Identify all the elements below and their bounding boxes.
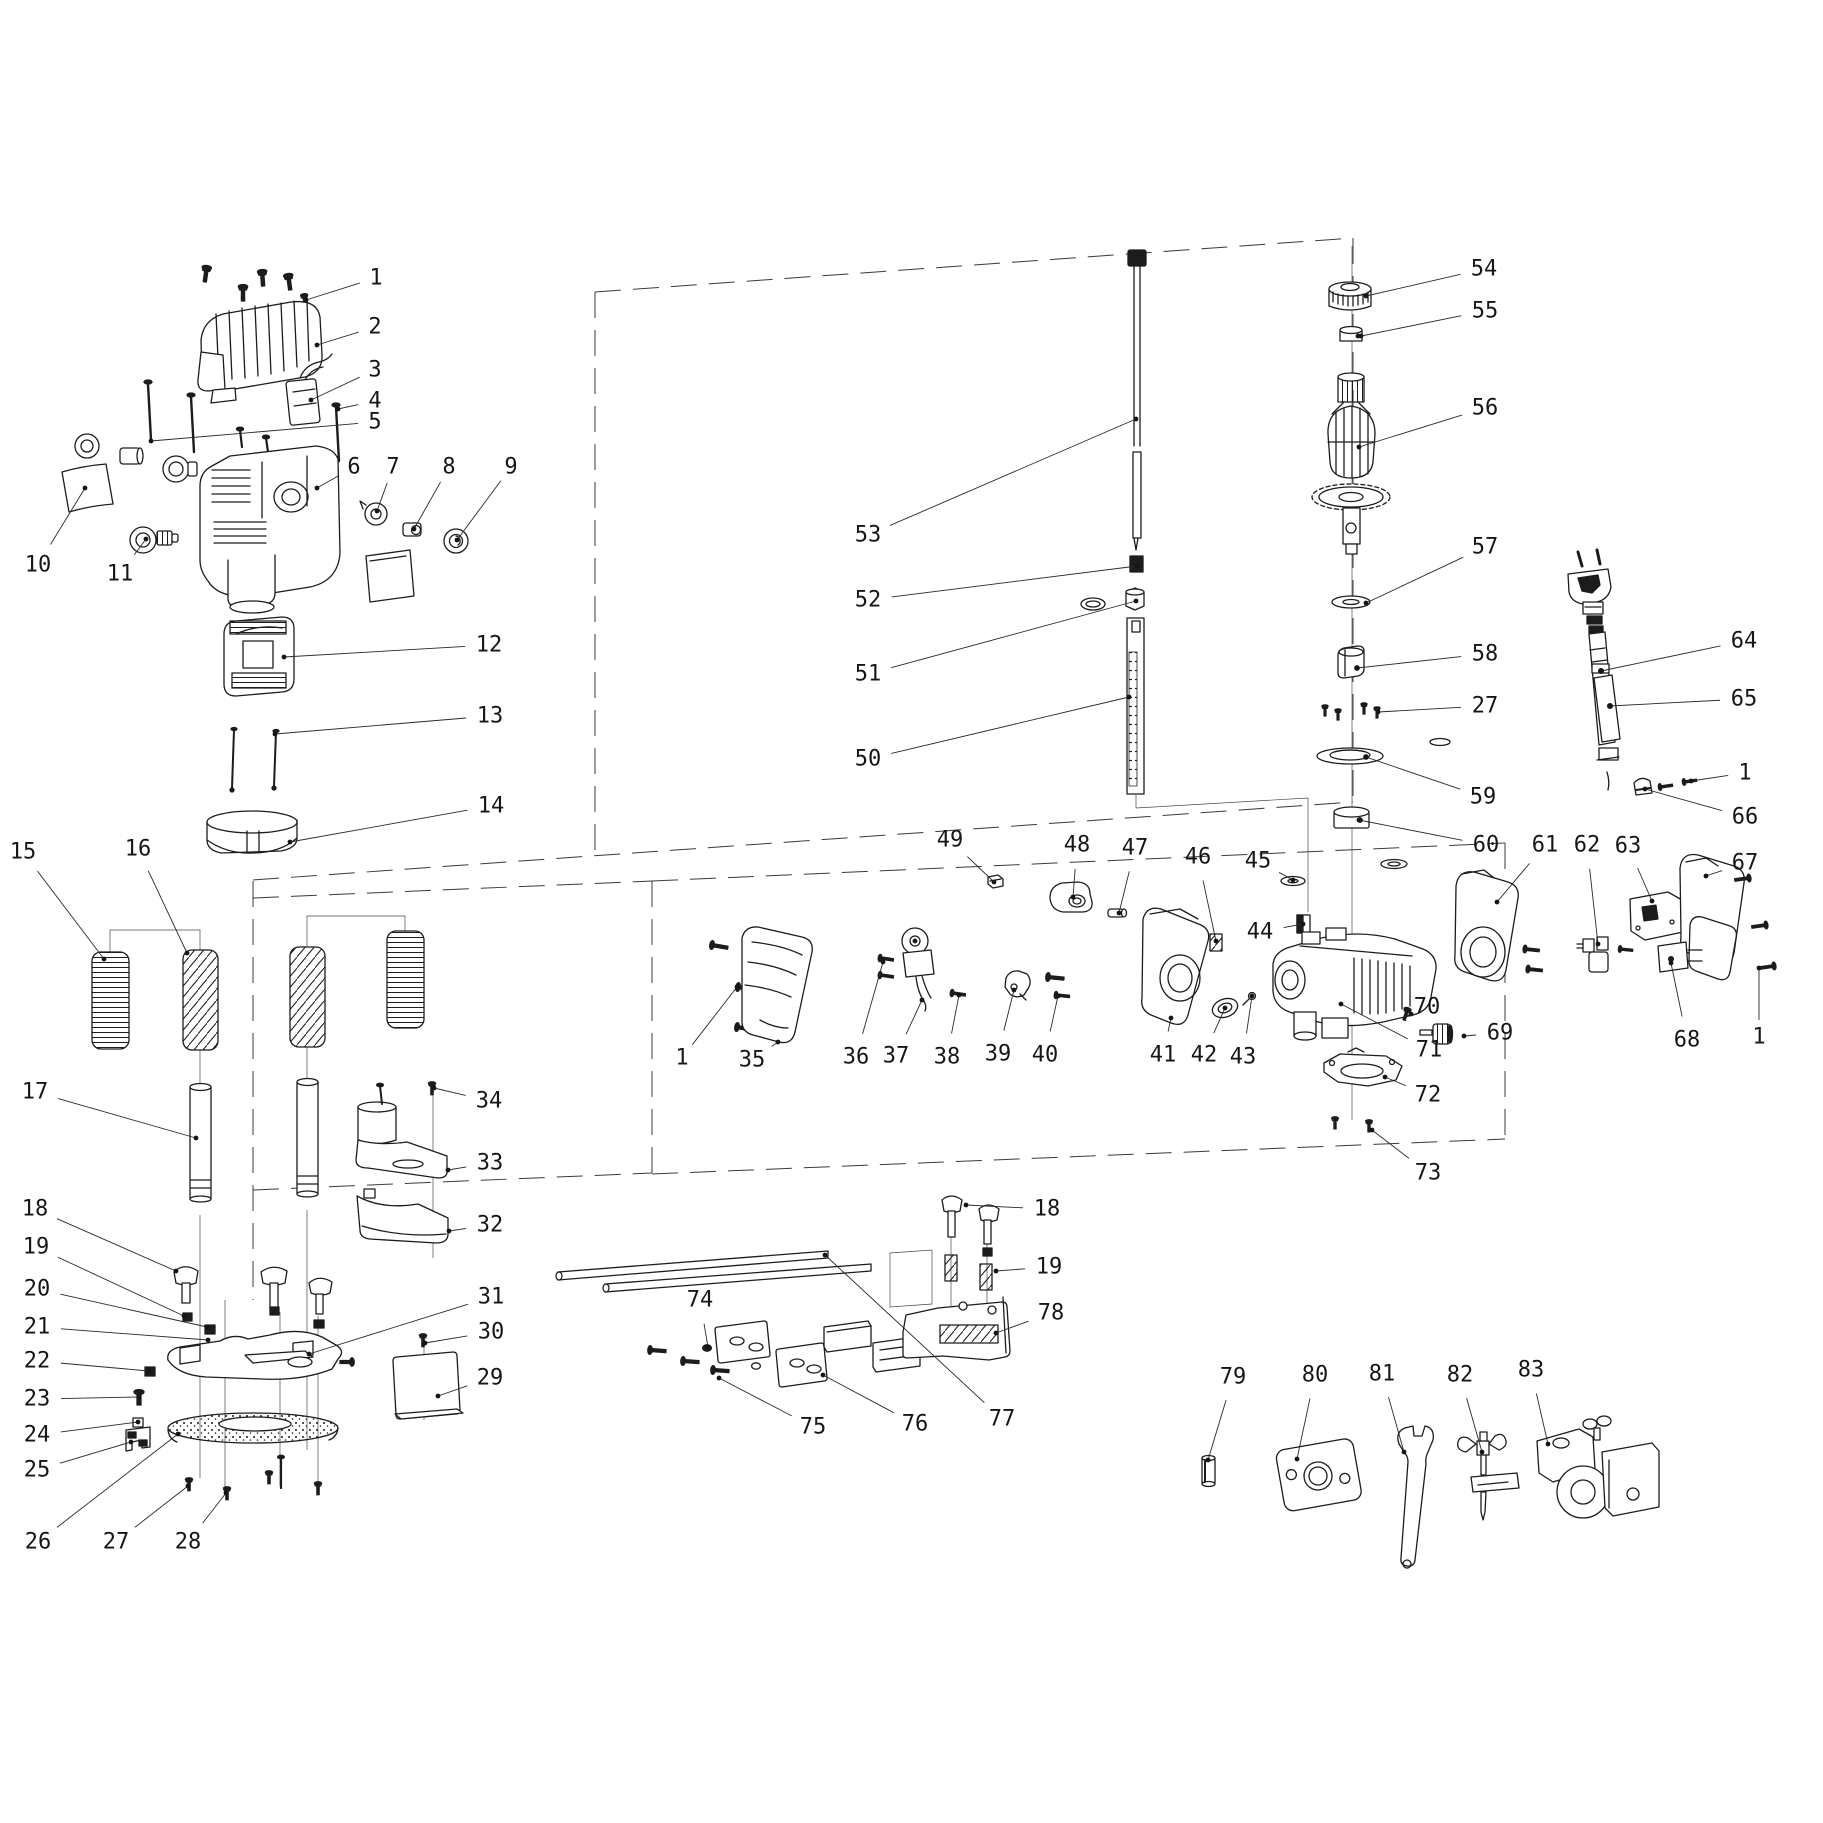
leader-dot-36-35 (881, 960, 886, 965)
leader-dot-21-20 (206, 1338, 211, 1343)
part-base-flange (1324, 1048, 1402, 1086)
leader-line-38-37 (952, 995, 959, 1033)
leader-dot-18-17 (174, 1269, 179, 1274)
callout-37-36: 37 (883, 1044, 910, 1069)
callout-77-80: 77 (989, 1407, 1016, 1432)
callout-66-67: 66 (1732, 805, 1759, 830)
leader-dot-32-31 (447, 1229, 452, 1234)
callout-49-48: 49 (937, 828, 964, 853)
leader-dot-3-2 (309, 398, 314, 403)
leader-dot-37-36 (920, 998, 925, 1003)
leader-line-25-24 (60, 1442, 131, 1463)
callout-54-53: 54 (1471, 257, 1498, 282)
part-spacer-60 (1334, 807, 1369, 828)
leader-dot-74-77 (706, 1345, 711, 1350)
phantom-box-b2-bottom (652, 1139, 1505, 1174)
leader-dot-20-19 (205, 1325, 210, 1330)
leader-dot-39-38 (1012, 988, 1017, 993)
leader-dot-31-30 (307, 1352, 312, 1357)
leader-dot-23-22 (137, 1395, 142, 1400)
leader-dot-14-13 (288, 840, 293, 845)
callout-3-2: 3 (368, 358, 381, 383)
callout-43-42: 43 (1230, 1045, 1257, 1070)
leader-dot-76-79 (821, 1373, 826, 1378)
callout-20-19: 20 (24, 1277, 51, 1302)
callout-34-33: 34 (476, 1089, 503, 1114)
part-fence-plates (715, 1321, 827, 1387)
callout-35-34: 35 (739, 1048, 766, 1073)
leader-dot-44-43 (1301, 922, 1306, 927)
callout-57-56: 57 (1472, 535, 1499, 560)
leader-line-50-49 (891, 697, 1129, 753)
callout-10-9: 10 (25, 553, 52, 578)
fence-detail-frame (890, 1250, 932, 1307)
leader-line-17-16 (58, 1099, 196, 1138)
callout-32-31: 32 (477, 1213, 504, 1238)
leader-line-19-83 (996, 1269, 1025, 1271)
callout-11-10: 11 (107, 562, 134, 587)
leader-line-60-60 (1359, 820, 1462, 840)
leader-dot-42-41 (1223, 1006, 1228, 1011)
callout-30-29: 30 (478, 1320, 505, 1345)
leader-line-27-58 (1378, 707, 1461, 712)
part-retainer-washer-59 (1317, 748, 1383, 764)
callout-29-28: 29 (477, 1366, 504, 1391)
leader-line-1-66 (1691, 775, 1728, 781)
callout-58-57: 58 (1472, 642, 1499, 667)
leader-dot-11-10 (144, 537, 149, 542)
leader-dot-68-69 (1669, 961, 1674, 966)
leader-dot-19-18 (182, 1314, 187, 1319)
callout-1-75: 1 (675, 1046, 688, 1071)
part-cap-7 (360, 501, 387, 525)
leader-dot-12-11 (282, 655, 287, 660)
part-spring-dense-left (92, 952, 129, 1049)
callout-46-45: 46 (1185, 845, 1212, 870)
leader-line-14-13 (290, 810, 467, 842)
leader-dot-28-27 (224, 1491, 229, 1496)
leader-dot-16-15 (185, 951, 190, 956)
leader-dot-66-67 (1643, 787, 1648, 792)
callout-56-55: 56 (1472, 396, 1499, 421)
callout-63-63: 63 (1615, 834, 1642, 859)
callout-31-30: 31 (478, 1285, 505, 1310)
leader-line-74-77 (704, 1324, 708, 1347)
leader-dot-15-14 (102, 957, 107, 962)
callout-17-16: 17 (22, 1080, 49, 1105)
part-label-sticker (366, 550, 414, 602)
leader-dot-80-85 (1295, 1457, 1300, 1462)
part-screws-27 (1322, 703, 1380, 721)
part-speed-dial (902, 928, 934, 1011)
callout-41-40: 41 (1150, 1043, 1177, 1068)
leader-line-53-52 (890, 419, 1136, 525)
leader-line-21-20 (61, 1329, 208, 1340)
leader-dot-64-64 (1599, 669, 1604, 674)
exploded-parts-diagram: 1234567891011121314151617181920212223242… (0, 0, 1823, 1823)
leader-dot-50-49 (1127, 695, 1132, 700)
callout-67-68: 67 (1732, 851, 1759, 876)
leader-dot-72-73 (1383, 1075, 1388, 1080)
callout-8-7: 8 (442, 455, 455, 480)
callout-22-21: 22 (24, 1349, 51, 1374)
leader-line-65-65 (1610, 700, 1720, 706)
leader-line-1-0 (306, 283, 360, 300)
callout-23-22: 23 (24, 1387, 51, 1412)
leader-dot-22-21 (147, 1369, 152, 1374)
part-side-knob (130, 527, 178, 553)
leader-dot-57-56 (1364, 601, 1369, 606)
part-clamp-ring (207, 811, 297, 853)
leader-dot-40-39 (1056, 994, 1061, 999)
callout-52-51: 52 (855, 588, 882, 613)
leader-line-8-7 (414, 482, 441, 529)
callout-60-60: 60 (1473, 833, 1500, 858)
spring-group-brackets (110, 916, 405, 952)
phantom-box-a-top (595, 238, 1353, 292)
phantom-box-b1-top (253, 881, 652, 898)
leader-line-15-14 (37, 871, 104, 959)
leader-line-34-33 (434, 1088, 466, 1095)
leader-line-30-29 (425, 1336, 467, 1343)
part-base-small-fasteners (126, 1367, 155, 1451)
leader-line-47-46 (1119, 871, 1129, 913)
part-switch-screws (1523, 945, 1633, 975)
part-cord-clamp (1634, 777, 1697, 795)
leader-line-5-4 (151, 423, 358, 441)
callout-62-62: 62 (1574, 833, 1601, 858)
part-guide-pins (230, 728, 279, 793)
leader-dot-24-23 (136, 1420, 141, 1425)
leader-dot-7-6 (375, 509, 380, 514)
leader-dot-19-83 (994, 1269, 999, 1274)
callout-68-69: 68 (1674, 1028, 1701, 1053)
leader-dot-53-52 (1134, 417, 1139, 422)
callout-50-49: 50 (855, 747, 882, 772)
leader-line-33-32 (448, 1167, 466, 1170)
leader-line-40-39 (1050, 996, 1058, 1032)
leader-line-54-53 (1366, 274, 1461, 296)
callout-83-88: 83 (1518, 1358, 1545, 1383)
leader-dot-9-8 (455, 538, 460, 543)
callout-78-81: 78 (1038, 1301, 1065, 1326)
leader-dot-26-25 (176, 1432, 181, 1437)
leader-dot-56-55 (1357, 445, 1362, 450)
callout-47-46: 47 (1122, 836, 1149, 861)
leader-line-79-84 (1208, 1400, 1226, 1460)
leader-line-68-69 (1671, 963, 1682, 1017)
leader-dot-75-78 (717, 1376, 722, 1381)
leader-line-66-67 (1645, 789, 1722, 811)
part-dust-shoe (357, 1189, 448, 1243)
leader-line-76-79 (823, 1375, 894, 1413)
leader-dot-2-1 (315, 343, 320, 348)
leader-line-28-27 (203, 1493, 226, 1523)
callout-70-71: 70 (1414, 995, 1441, 1020)
leader-dot-49-48 (992, 880, 997, 885)
part-depth-rod-fine (1128, 250, 1146, 550)
callout-38-37: 38 (934, 1045, 961, 1070)
leader-dot-83-88 (1546, 1442, 1551, 1447)
callout-28-27: 28 (175, 1530, 202, 1555)
leader-dot-67-68 (1704, 874, 1709, 879)
callout-45-44: 45 (1245, 849, 1272, 874)
callout-82-87: 82 (1447, 1363, 1474, 1388)
callout-48-47: 48 (1064, 833, 1091, 858)
axis-lines (110, 246, 1352, 1487)
leader-line-13-12 (275, 718, 466, 734)
leader-line-36-35 (863, 962, 883, 1034)
leader-dot-27-26 (186, 1484, 191, 1489)
leader-dot-45-44 (1291, 878, 1296, 883)
leader-line-27-26 (135, 1486, 188, 1527)
part-nameplate (62, 464, 113, 512)
part-motor-housing (200, 446, 340, 613)
leader-dot-65-65 (1608, 704, 1613, 709)
leader-dot-8-7 (412, 527, 417, 532)
callout-59-59: 59 (1470, 785, 1497, 810)
callout-55-54: 55 (1472, 299, 1499, 324)
part-roller-guide-83 (1537, 1416, 1659, 1518)
part-spring-dense-right (387, 931, 424, 1028)
part-guide-rods (556, 1251, 871, 1292)
callout-53-52: 53 (855, 523, 882, 548)
leader-dot-43-42 (1250, 994, 1255, 999)
part-spring-coil-left (183, 950, 218, 1050)
leader-line-2-1 (317, 332, 359, 345)
leader-dot-38-37 (957, 993, 962, 998)
callout-5-4: 5 (368, 410, 381, 435)
callout-14-13: 14 (478, 794, 505, 819)
callout-71-72: 71 (1416, 1038, 1443, 1063)
leader-dot-1-75 (735, 985, 740, 990)
leader-line-18-17 (57, 1219, 176, 1271)
leader-dot-17-16 (194, 1136, 199, 1141)
leader-line-31-30 (309, 1304, 468, 1354)
rod-to-key-link-line (1136, 795, 1308, 912)
leader-dot-13-12 (273, 732, 278, 737)
part-guide-column-right (297, 1079, 318, 1198)
leader-line-12-11 (284, 646, 465, 657)
callout-79-84: 79 (1220, 1365, 1247, 1390)
leader-line-16-15 (148, 871, 187, 953)
leader-dot-10-9 (83, 486, 88, 491)
callout-25-24: 25 (24, 1458, 51, 1483)
callout-73-74: 73 (1415, 1161, 1442, 1186)
callout-44-43: 44 (1247, 920, 1274, 945)
leader-dot-58-57 (1355, 666, 1360, 671)
callout-42-41: 42 (1191, 1043, 1218, 1068)
leader-dot-54-53 (1364, 294, 1369, 299)
leader-dot-70-71 (1409, 1012, 1414, 1017)
leader-line-64-64 (1601, 646, 1721, 671)
part-trammel-82 (1458, 1432, 1519, 1520)
callout-65-65: 65 (1731, 687, 1758, 712)
leader-dot-79-84 (1206, 1458, 1211, 1463)
callout-51-50: 51 (855, 662, 882, 687)
callout-16-15: 16 (125, 837, 152, 862)
callout-26-25: 26 (25, 1530, 52, 1555)
leader-line-3-2 (311, 377, 360, 400)
callout-69-70: 69 (1487, 1021, 1514, 1046)
leader-line-81-86 (1389, 1397, 1404, 1452)
part-power-cord (1568, 550, 1620, 790)
part-cover-screws (200, 265, 309, 307)
callout-18-17: 18 (22, 1197, 49, 1222)
leader-dot-25-24 (129, 1440, 134, 1445)
callout-27-58: 27 (1472, 694, 1499, 719)
leader-line-1-75 (692, 987, 737, 1045)
callout-18-82: 18 (1034, 1197, 1061, 1222)
leader-line-26-25 (57, 1434, 178, 1527)
leader-dot-81-86 (1402, 1450, 1407, 1455)
leader-dot-52-51 (1135, 564, 1140, 569)
callout-13-12: 13 (477, 704, 504, 729)
leader-dot-71-72 (1339, 1002, 1344, 1007)
leader-dot-18-82 (964, 1203, 969, 1208)
leader-dot-63-63 (1650, 899, 1655, 904)
callout-27-26: 27 (103, 1530, 130, 1555)
part-template-guide-80 (1275, 1438, 1363, 1513)
diagram-canvas: 1234567891011121314151617181920212223242… (0, 0, 1823, 1823)
part-depth-scale-rod (1127, 618, 1144, 794)
leader-dot-77-80 (823, 1253, 828, 1258)
leader-dot-30-29 (423, 1341, 428, 1346)
callout-1-66: 1 (1738, 761, 1751, 786)
part-fence-knob-b (979, 1205, 999, 1290)
leader-dot-4-3 (336, 407, 341, 412)
leader-dot-69-70 (1462, 1034, 1467, 1039)
part-right-grip (1142, 908, 1209, 1024)
part-wrench-81 (1398, 1426, 1433, 1568)
callout-72-73: 72 (1415, 1083, 1442, 1108)
leader-dot-35-34 (776, 1040, 781, 1045)
part-base-plate-screws (185, 1455, 321, 1500)
leader-line-22-21 (61, 1363, 149, 1371)
leader-line-4-3 (338, 405, 358, 409)
leader-line-9-8 (457, 481, 501, 540)
callout-19-83: 19 (1036, 1255, 1063, 1280)
part-connector-62 (1577, 937, 1608, 972)
leader-line-83-88 (1536, 1393, 1548, 1444)
callout-1-76: 1 (1752, 1025, 1765, 1050)
callout-64-64: 64 (1731, 629, 1758, 654)
callout-76-79: 76 (902, 1412, 929, 1437)
leader-line-49-48 (967, 857, 994, 882)
part-fence-knob-a (942, 1196, 962, 1281)
part-bearing-block-58 (1338, 646, 1364, 678)
callout-19-18: 19 (23, 1235, 50, 1260)
part-collar-55 (1340, 327, 1362, 342)
callout-80-85: 80 (1302, 1363, 1329, 1388)
leader-dot-27-58 (1376, 710, 1381, 715)
leader-dot-33-32 (446, 1168, 451, 1173)
leader-dot-1-0 (304, 298, 309, 303)
callout-24-23: 24 (24, 1423, 51, 1448)
leader-line-51-50 (891, 601, 1136, 668)
leader-dot-6-5 (315, 486, 320, 491)
part-armature (1312, 373, 1390, 554)
part-sub-base (393, 1352, 463, 1419)
leader-dot-41-40 (1169, 1016, 1174, 1021)
callout-81-86: 81 (1369, 1362, 1396, 1387)
callout-7-6: 7 (386, 455, 399, 480)
callout-39-38: 39 (985, 1042, 1012, 1067)
part-main-switch (1630, 892, 1683, 940)
leader-dot-62-62 (1596, 942, 1601, 947)
leader-line-37-36 (906, 1000, 922, 1034)
part-dust-port (356, 1083, 447, 1178)
callout-36-35: 36 (843, 1045, 870, 1070)
part-spring-coil-right (290, 947, 325, 1047)
leader-line-59-59 (1366, 757, 1460, 789)
part-cam-lever (1005, 971, 1030, 1000)
callout-61-61: 61 (1532, 833, 1559, 858)
callout-9-8: 9 (504, 455, 517, 480)
part-right-handle-inner (1455, 870, 1519, 981)
leader-dot-55-54 (1359, 334, 1364, 339)
leader-dot-73-74 (1370, 1128, 1375, 1133)
leader-line-23-22 (61, 1397, 139, 1399)
part-left-handle (742, 927, 812, 1043)
callout-40-39: 40 (1032, 1043, 1059, 1068)
part-motor-bearing-housing (1273, 928, 1436, 1040)
callout-12-11: 12 (476, 633, 503, 658)
leader-dot-5-4 (149, 439, 154, 444)
leader-dot-60-60 (1357, 818, 1362, 823)
callout-75-78: 75 (800, 1415, 827, 1440)
leader-dot-48-47 (1071, 895, 1076, 900)
callout-21-20: 21 (24, 1315, 51, 1340)
part-base-plate (168, 1413, 338, 1443)
leader-dot-47-46 (1117, 911, 1122, 916)
callout-6-5: 6 (347, 455, 360, 480)
leader-dot-59-59 (1364, 755, 1369, 760)
leader-dot-1-66 (1689, 779, 1694, 784)
leader-dot-46-45 (1214, 939, 1219, 944)
part-guide-column-left (190, 1084, 211, 1203)
callout-1-0: 1 (369, 266, 382, 291)
leader-dot-61-61 (1495, 900, 1500, 905)
callout-2-1: 2 (368, 315, 381, 340)
callout-15-14: 15 (10, 840, 37, 865)
leader-dot-51-50 (1134, 599, 1139, 604)
leader-line-52-51 (892, 566, 1137, 597)
leader-line-55-54 (1361, 316, 1461, 336)
part-fence-bracket (903, 1297, 1010, 1360)
leader-line-62-62 (1590, 869, 1598, 944)
leader-dot-82-87 (1480, 1450, 1485, 1455)
leader-line-57-56 (1366, 557, 1463, 603)
leader-line-58-57 (1357, 657, 1461, 668)
callout-74-77: 74 (687, 1288, 714, 1313)
leader-line-39-38 (1004, 990, 1014, 1031)
leader-dot-1-76 (1757, 966, 1762, 971)
leader-dot-78-81 (994, 1331, 999, 1336)
leader-line-32-31 (449, 1228, 466, 1231)
leader-dot-29-28 (436, 1394, 441, 1399)
callout-33-32: 33 (477, 1151, 504, 1176)
leader-dot-34-33 (432, 1086, 437, 1091)
